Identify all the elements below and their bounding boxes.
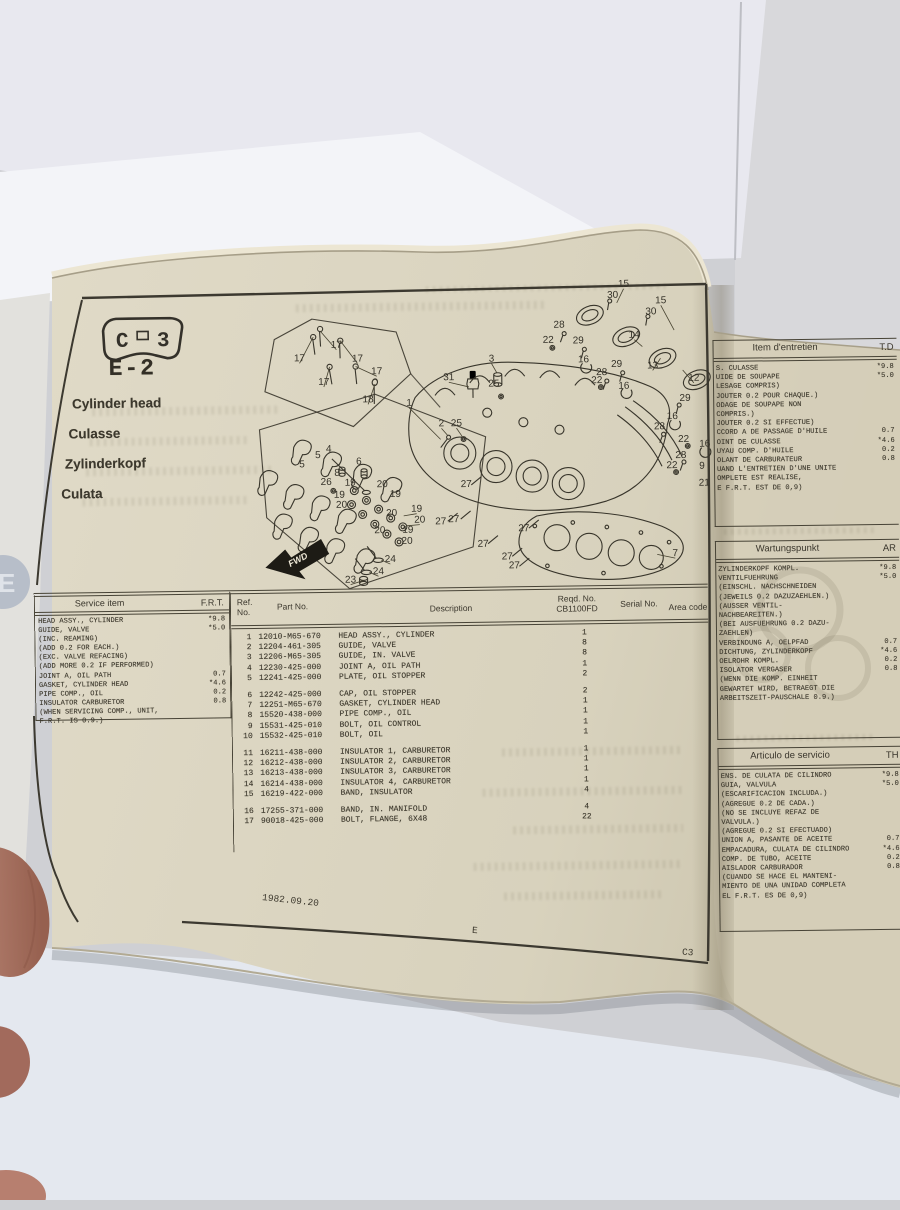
footer-date: 1982.09.20 [262,892,320,909]
footer-section-letter: E [472,925,478,936]
footer-page-code: C3 [682,947,694,959]
